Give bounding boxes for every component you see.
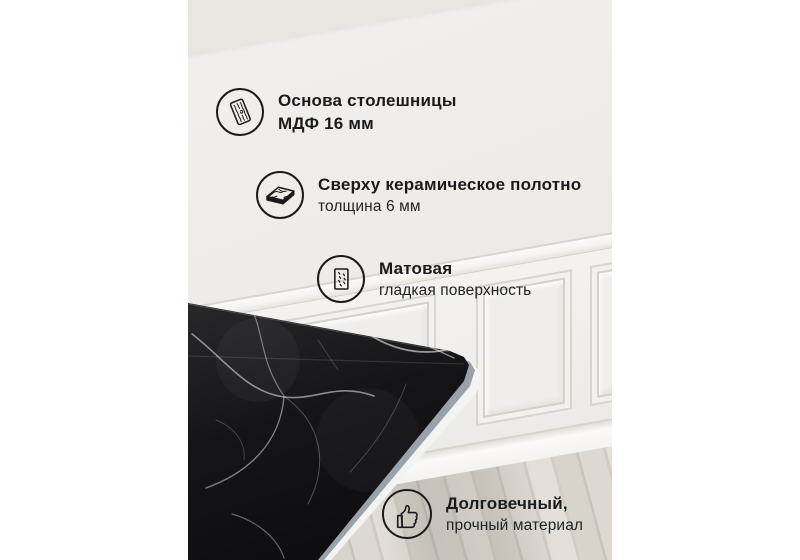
callout-title: Матовая [379, 257, 531, 280]
matte-surface-icon [317, 255, 365, 303]
callout-title: Сверху керамическое полотно [318, 173, 581, 196]
thumbs-up-icon [382, 489, 432, 539]
callout-text: Сверху керамическое полотно толщина 6 мм [318, 173, 581, 217]
callout-title: Долговечный, [446, 492, 583, 515]
callout-matte-surface: Матовая гладкая поверхность [317, 255, 531, 303]
callout-title: Основа столешницы [278, 89, 457, 112]
product-card: Основа столешницы МДФ 16 мм Сверху керам… [0, 0, 800, 560]
callout-text: Матовая гладкая поверхность [379, 257, 531, 301]
callout-text: Долговечный, прочный материал [446, 492, 583, 536]
callout-text: Основа столешницы МДФ 16 мм [278, 89, 457, 135]
callout-subtitle: гладкая поверхность [379, 280, 531, 301]
callout-subtitle: МДФ 16 мм [278, 112, 457, 135]
callout-subtitle: толщина 6 мм [318, 196, 581, 217]
callout-durable: Долговечный, прочный материал [382, 489, 583, 539]
callout-mdf-base: Основа столешницы МДФ 16 мм [216, 88, 457, 136]
callout-subtitle: прочный материал [446, 515, 583, 536]
mdf-board-icon [216, 88, 264, 136]
callout-ceramic-top: Сверху керамическое полотно толщина 6 мм [256, 171, 581, 219]
wainscot-panel [590, 244, 612, 406]
ceramic-slab-icon [256, 171, 304, 219]
